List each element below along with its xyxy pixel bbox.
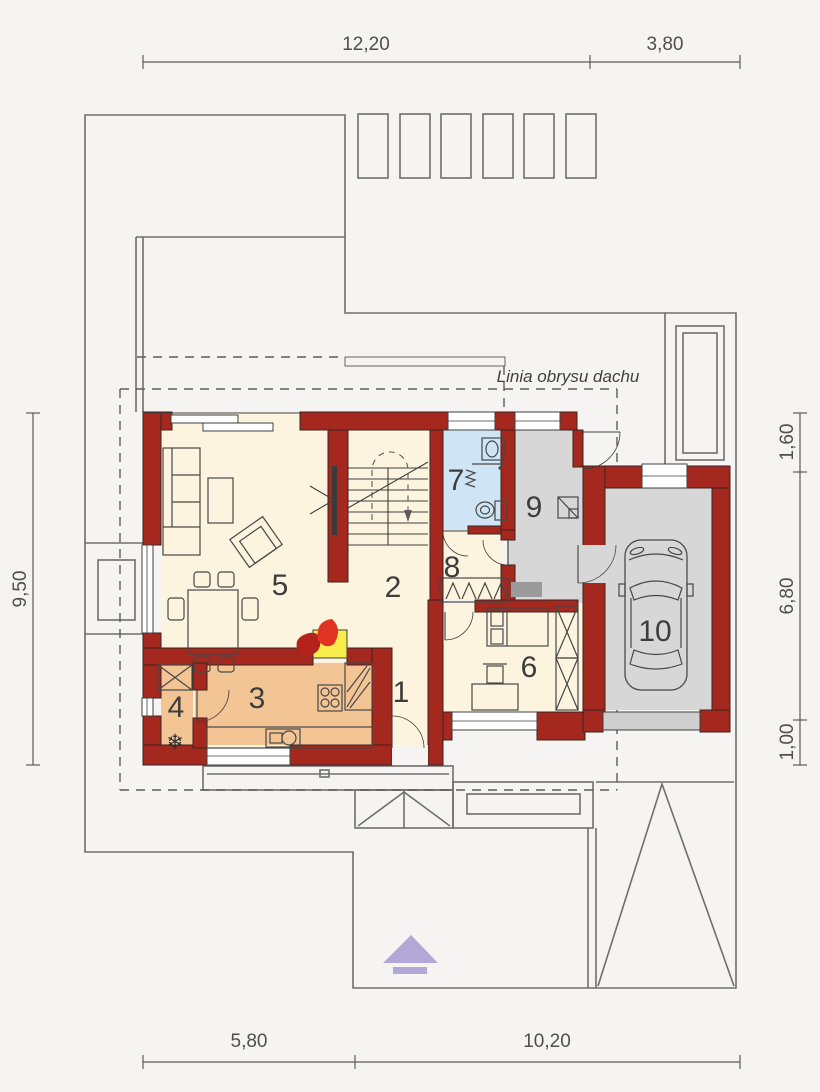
window-bathroom	[448, 412, 495, 430]
window-room6	[452, 712, 537, 730]
window-pantry	[142, 698, 153, 716]
dim-left-1: 9,50	[10, 571, 31, 608]
window-sliding-pane-1	[171, 415, 238, 423]
room-label-7: 7	[448, 464, 465, 497]
window-utility	[515, 412, 560, 430]
passage-to-garage	[576, 545, 607, 583]
snowflake-icon: ❄	[166, 731, 184, 754]
dim-bottom-2: 10,20	[523, 1031, 571, 1052]
dim-right-3: 1,00	[777, 724, 798, 761]
front-door-opening	[392, 745, 428, 765]
floor-plan-page: Linia obrysu dachu	[0, 0, 820, 1087]
room-label-10: 10	[638, 615, 671, 648]
dim-bottom-1: 5,80	[231, 1031, 268, 1052]
window-kitchen	[207, 748, 290, 765]
dim-top-1: 12,20	[342, 34, 390, 55]
dim-right-2: 6,80	[777, 578, 798, 615]
room-label-4: 4	[168, 691, 185, 724]
window-sliding-pane-2	[203, 423, 273, 431]
room-label-2: 2	[385, 571, 402, 604]
room-label-3: 3	[249, 682, 266, 715]
garage-door	[603, 712, 700, 730]
room-label-8: 8	[444, 551, 461, 584]
window-garage	[642, 464, 687, 488]
doormat	[511, 582, 542, 597]
roof-outline-label: Linia obrysu dachu	[497, 367, 640, 386]
room-9-floor	[507, 430, 583, 603]
room-label-9: 9	[526, 491, 543, 524]
room-label-1: 1	[393, 676, 410, 709]
window-living-left	[142, 545, 153, 633]
floor-plan-drawing: Linia obrysu dachu	[0, 0, 820, 1087]
room-label-6: 6	[521, 651, 538, 684]
room-label-5: 5	[272, 569, 289, 602]
dim-right-1: 1,60	[777, 424, 798, 461]
dim-top-2: 3,80	[647, 34, 684, 55]
